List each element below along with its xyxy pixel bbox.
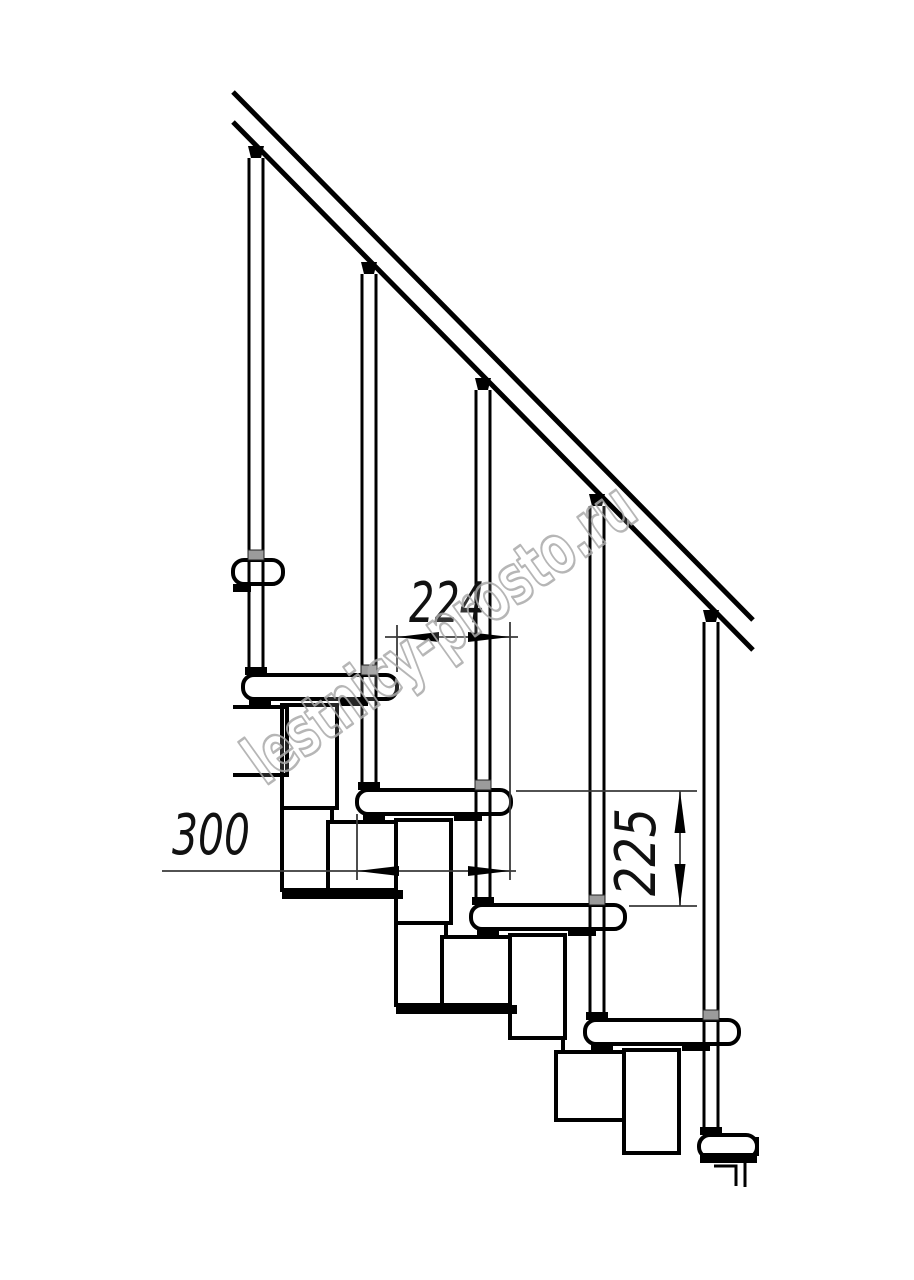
- staircase-technical-drawing: 224300225lestnicy-prosto.ru: [0, 0, 914, 1280]
- tread-4: [585, 1020, 739, 1044]
- dim-300-label: 300: [172, 803, 250, 868]
- drawing-canvas: 224300225lestnicy-prosto.ru: [0, 0, 914, 1280]
- drawing-break-step: [714, 1166, 736, 1186]
- module-band-1: [282, 890, 403, 899]
- handrail-upper-line: [233, 92, 753, 620]
- baluster-2-rail-wedge: [361, 262, 377, 274]
- tread-0-partial: [233, 560, 283, 584]
- tread-5-mount-band: [700, 1153, 757, 1163]
- module-box-4: [556, 1052, 631, 1120]
- baluster-2-foot: [358, 782, 380, 790]
- module-post-3-upper: [510, 935, 565, 1038]
- baluster-3-rail-wedge: [475, 378, 491, 390]
- dim-225-arrow-down: [675, 864, 686, 906]
- module-post-4-upper: [624, 1050, 679, 1153]
- module-box-2: [328, 822, 403, 890]
- tread-2-mount-right: [454, 814, 482, 821]
- baluster-5-rail-wedge: [703, 610, 719, 622]
- baluster-5-tread-collar: [703, 1010, 719, 1020]
- dim-225-label: 225: [604, 808, 669, 896]
- tread-2: [357, 790, 511, 814]
- tread-4-mount-right: [682, 1044, 710, 1051]
- tread-4-mount-left: [591, 1044, 613, 1051]
- module-band-2: [396, 1005, 517, 1014]
- tread-3-mount-left: [477, 929, 499, 936]
- tread-3: [471, 905, 625, 929]
- baluster-1-foot: [245, 667, 267, 675]
- baluster-3-tread-collar: [475, 780, 491, 790]
- tread-3-mount-right: [568, 929, 596, 936]
- tread-2-mount-left: [363, 814, 385, 821]
- tread-1-mount-left: [249, 699, 271, 706]
- baluster-3-foot: [472, 897, 494, 905]
- module-post-1-lower: [282, 808, 332, 890]
- baluster-1-rail-wedge: [248, 146, 264, 158]
- module-post-2-lower: [396, 923, 446, 1005]
- baluster-4-foot: [586, 1012, 608, 1020]
- dim-225-arrow-up: [675, 791, 686, 833]
- module-box-3: [442, 937, 517, 1005]
- watermark-text: lestnicy-prosto.ru: [229, 467, 651, 800]
- baluster-5-foot: [700, 1127, 722, 1135]
- baluster-4-tread-collar: [589, 895, 605, 905]
- baluster-1-tread-collar: [248, 550, 264, 560]
